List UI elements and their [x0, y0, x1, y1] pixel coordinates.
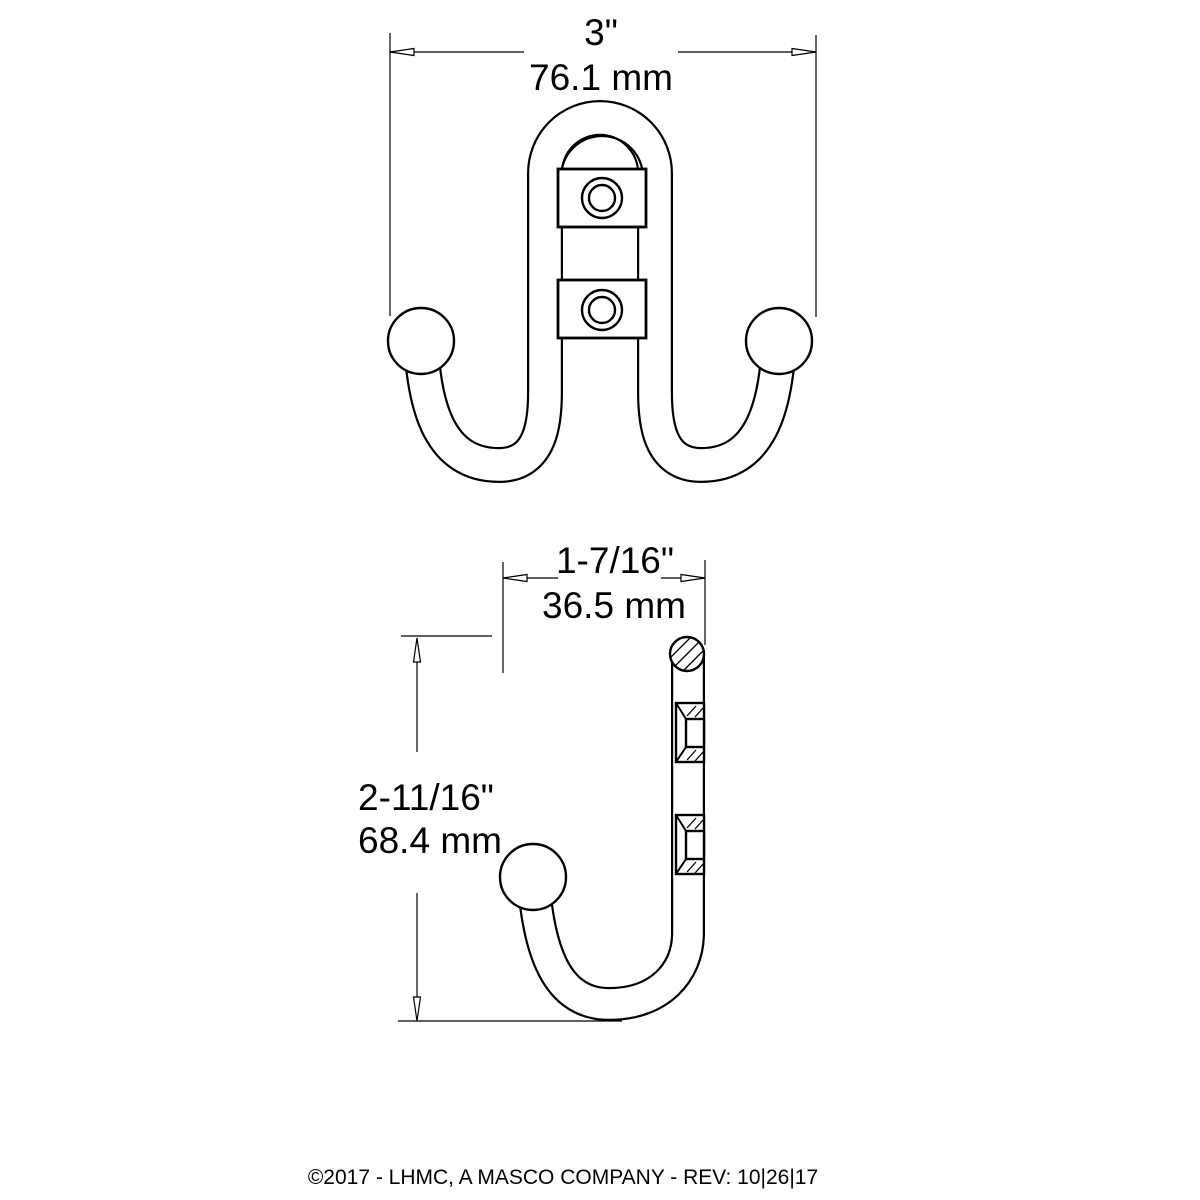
- hook-rod-fill: [533, 655, 688, 1004]
- side-depth-inches-label: 1-7/16": [556, 540, 674, 581]
- rod-end-section: [670, 637, 704, 671]
- arrowhead-up-icon: [414, 638, 421, 662]
- ball-end: [500, 844, 566, 910]
- screw-boss-top: [676, 703, 704, 762]
- side-view: 1-7/16" 36.5 mm 2-11/16" 68.4 mm: [358, 540, 705, 1021]
- arrowhead-left-icon: [503, 575, 527, 582]
- front-width-mm-label: 76.1 mm: [529, 57, 673, 98]
- front-width-dimension: 3" 76.1 mm: [390, 12, 816, 317]
- side-depth-mm-label: 36.5 mm: [542, 585, 686, 626]
- screw-boss-bottom: [676, 815, 704, 874]
- front-hook-drawing: [388, 118, 812, 465]
- copyright-text: ©2017 - LHMC, A MASCO COMPANY - REV: 10|…: [308, 1166, 818, 1189]
- technical-drawing: 3" 76.1 mm: [0, 0, 1200, 1200]
- boss-inner: [686, 719, 704, 747]
- front-view: 3" 76.1 mm: [388, 12, 816, 465]
- side-hook-drawing: [500, 637, 704, 1004]
- side-height-inches-label: 2-11/16": [358, 777, 494, 818]
- arrowhead-right-icon: [681, 575, 705, 582]
- side-height-mm-label: 68.4 mm: [358, 820, 502, 861]
- drawing-canvas: 3" 76.1 mm: [0, 0, 1200, 1200]
- boss-inner: [686, 831, 704, 859]
- side-height-dimension: 2-11/16" 68.4 mm: [358, 636, 622, 1021]
- front-width-inches-label: 3": [584, 12, 618, 53]
- arrowhead-left-icon: [390, 49, 414, 56]
- arrowhead-right-icon: [792, 49, 816, 56]
- ball-end-right: [746, 308, 812, 374]
- ball-end-left: [388, 308, 454, 374]
- arrowhead-down-icon: [414, 997, 421, 1021]
